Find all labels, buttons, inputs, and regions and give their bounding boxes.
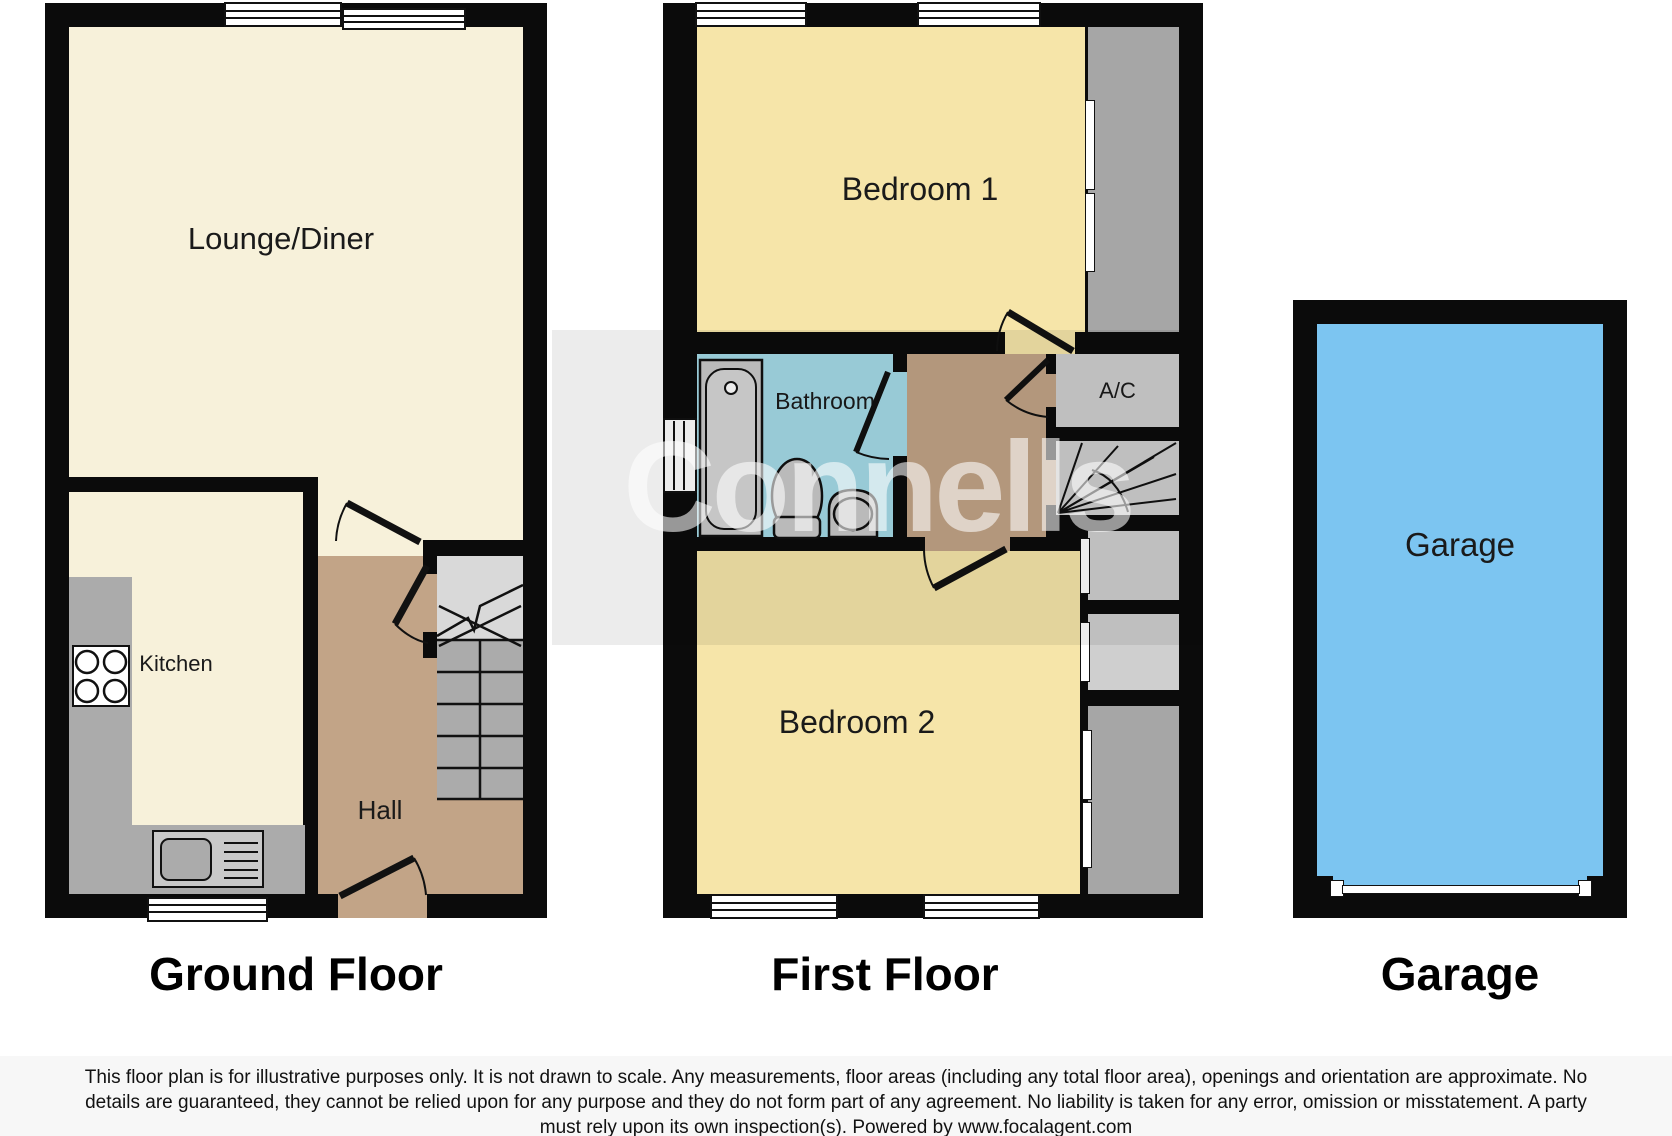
gf-front-door-opening bbox=[338, 894, 427, 918]
gf-kitchen-hall-wall bbox=[303, 492, 318, 894]
ff-bedroom1-wardrobe bbox=[1085, 27, 1179, 332]
gf-stairs-jamb-bottom bbox=[423, 632, 437, 658]
gf-lounge-label: Lounge/Diner bbox=[131, 218, 431, 260]
gf-hall-top-wall bbox=[423, 540, 523, 556]
garage-door-track bbox=[1342, 885, 1580, 894]
disclaimer-line-2: details are guaranteed, they cannot be r… bbox=[0, 1090, 1672, 1115]
gf-hall-label: Hall bbox=[320, 793, 440, 827]
gf-window-bottom-kitchen bbox=[147, 897, 268, 922]
gf-hall-floor-under-stairs bbox=[437, 800, 523, 894]
ground-floor-title: Ground Floor bbox=[46, 944, 546, 1004]
gf-stairs-jamb-top bbox=[423, 556, 437, 574]
garage-room-label: Garage bbox=[1310, 524, 1610, 566]
disclaimer: This floor plan is for illustrative purp… bbox=[0, 1056, 1672, 1136]
gf-stairs-landing bbox=[437, 556, 523, 640]
disclaimer-line-3: must rely upon its own inspection(s). Po… bbox=[0, 1115, 1672, 1136]
floorplan-page: Lounge/Diner Kitchen Hall bbox=[0, 0, 1672, 1136]
first-floor-title: First Floor bbox=[685, 944, 1085, 1004]
ff-wardrobe-slide-door-1 bbox=[1085, 100, 1095, 190]
ff-bedroom2-wardrobe bbox=[1088, 706, 1179, 894]
gf-kitchen-label: Kitchen bbox=[106, 648, 246, 680]
gf-sink-basin bbox=[160, 838, 212, 881]
ff-window-top-right bbox=[917, 2, 1041, 27]
ff-bedroom2-label: Bedroom 2 bbox=[707, 701, 1007, 743]
ff-cupboard-divider-wall-2 bbox=[1088, 690, 1179, 706]
ff-window-top-left bbox=[695, 2, 807, 27]
gf-hall-floor bbox=[318, 556, 437, 894]
gf-kitchen-divider-wall bbox=[69, 477, 318, 492]
ff-bedroom2-wardrobe-door-1 bbox=[1082, 730, 1092, 800]
ff-bedroom1-label: Bedroom 1 bbox=[770, 168, 1070, 210]
ff-window-bottom-left bbox=[710, 894, 838, 919]
disclaimer-line-1: This floor plan is for illustrative purp… bbox=[0, 1065, 1672, 1090]
watermark-text: Connells bbox=[552, 392, 1203, 582]
garage-door-end-right bbox=[1578, 880, 1592, 897]
gf-window-top-right bbox=[342, 8, 466, 30]
gf-window-top-left bbox=[224, 2, 342, 27]
garage-interior bbox=[1317, 324, 1603, 894]
gf-stairs-steps bbox=[437, 640, 523, 800]
garage-title: Garage bbox=[1293, 944, 1627, 1004]
ff-wardrobe-slide-door-2 bbox=[1085, 193, 1095, 272]
ff-bedroom2-wardrobe-door-2 bbox=[1082, 802, 1092, 868]
ff-window-bottom-right bbox=[923, 894, 1040, 919]
